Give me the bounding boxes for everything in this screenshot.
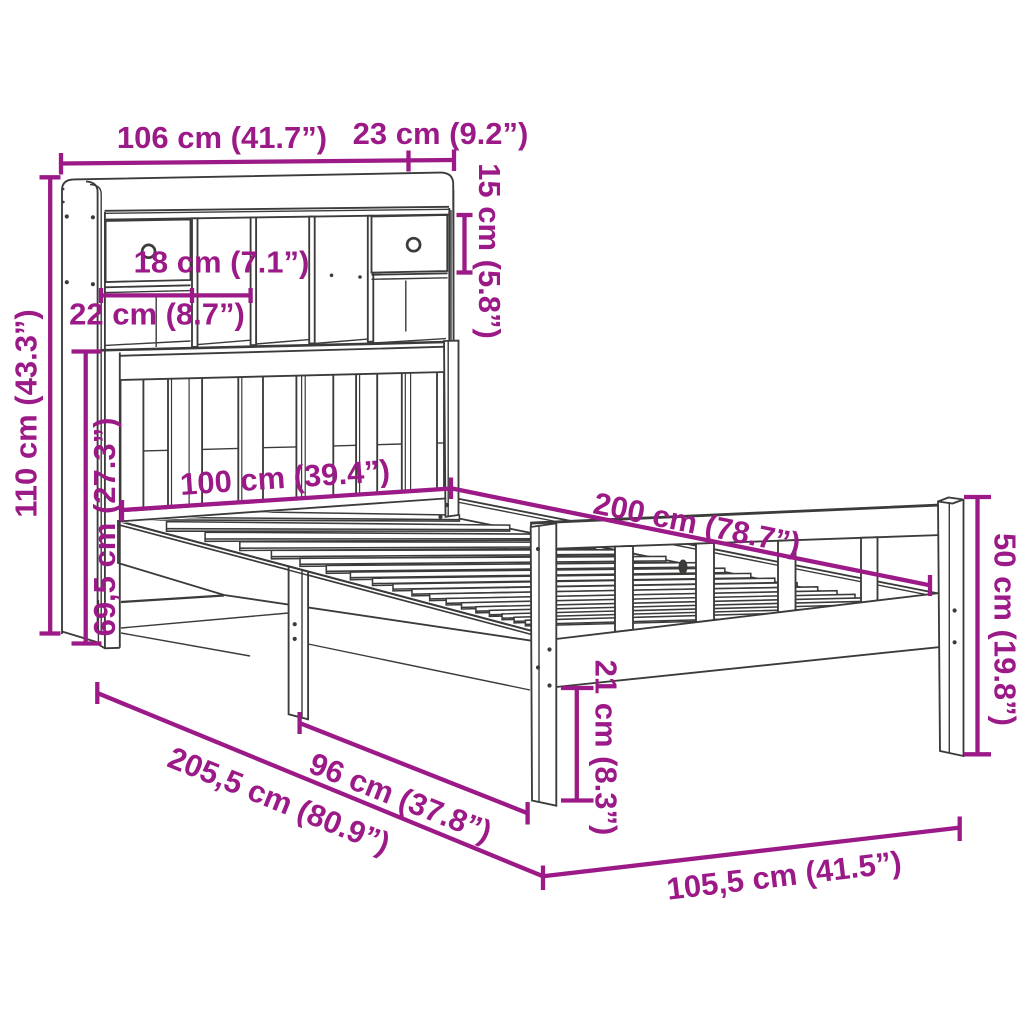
svg-text:69,5 cm (27.3”): 69,5 cm (27.3”) — [87, 418, 122, 637]
svg-text:23 cm (9.2”): 23 cm (9.2”) — [353, 116, 529, 151]
svg-text:21 cm (8.3”): 21 cm (8.3”) — [589, 660, 624, 836]
svg-text:50 cm (19.8”): 50 cm (19.8”) — [988, 533, 1023, 726]
svg-text:22 cm (8.7”): 22 cm (8.7”) — [69, 297, 245, 332]
svg-text:15 cm (5.8”): 15 cm (5.8”) — [472, 163, 507, 339]
svg-text:110 cm (43.3”): 110 cm (43.3”) — [9, 309, 44, 518]
svg-text:18 cm (7.1”): 18 cm (7.1”) — [134, 245, 310, 280]
svg-text:106 cm (41.7”): 106 cm (41.7”) — [117, 120, 327, 155]
